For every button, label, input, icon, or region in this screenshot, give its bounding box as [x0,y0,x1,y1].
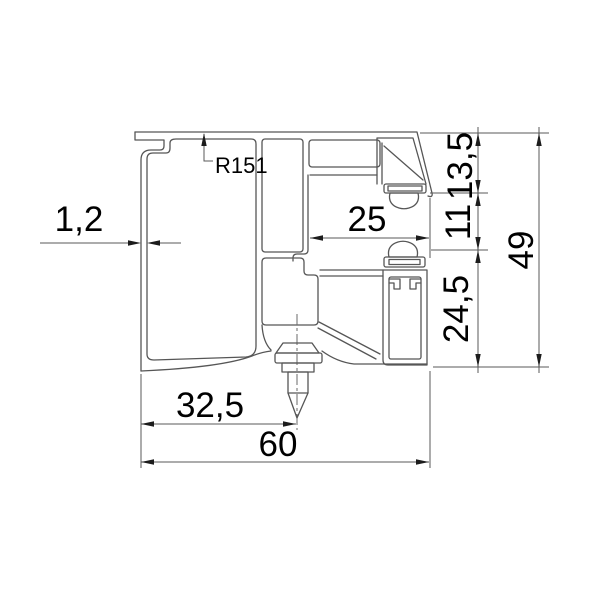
dim-radius-callout: R151 [215,153,268,178]
technical-drawing: 1,2 R151 25 13,5 11 24,5 49 32,5 60 [0,0,600,600]
dim-gap-height: 11 [439,204,478,240]
dim-groove-width: 25 [348,200,387,239]
mid-gasket-rail [384,257,425,267]
screw-neck [282,363,314,372]
middle-tall-chamber [262,139,303,252]
dim-wall-thickness: 1,2 [55,200,104,239]
screw-shank [288,372,308,393]
profile-outline [135,132,432,371]
drawing-canvas: 1,2 R151 25 13,5 11 24,5 49 32,5 60 [0,0,600,600]
sloped-web [318,322,380,359]
screw-detail [275,314,322,430]
mid-gasket-foot [389,260,420,265]
dimension-texts: 1,2 R151 25 13,5 11 24,5 49 32,5 60 [55,132,541,464]
lower-middle-chamber [262,258,318,325]
dim-total-height: 49 [502,231,541,270]
radius-leader [204,134,213,161]
groove-web [293,175,308,261]
profile-left-wall [135,132,164,371]
dim-lower-body-height: 24,5 [437,275,476,343]
top-gasket-foot [388,186,422,191]
mid-gasket-bulb [388,241,417,257]
dim-screw-offset: 32,5 [176,386,244,425]
top-gasket-bulb [389,193,418,209]
screw-tip [288,393,308,418]
fin-chamber [377,138,426,184]
bottom-wall-left [141,351,271,371]
horizontal-web [320,270,383,276]
right-chamber-hooks [389,279,421,289]
screw-flange [275,353,322,363]
dim-seal-zone-height: 13,5 [441,132,480,200]
screw-boss-left [262,325,271,350]
dim-total-width: 60 [259,425,298,464]
top-right-chamber [309,140,380,167]
